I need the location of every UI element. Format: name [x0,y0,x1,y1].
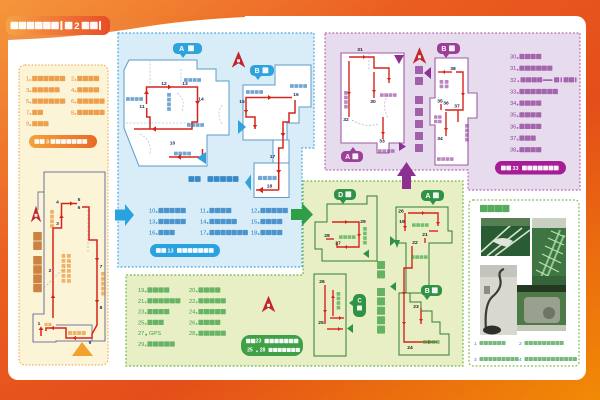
svg-text:3: 3 [46,139,49,145]
svg-text:9: 9 [26,122,29,128]
svg-text:31: 31 [510,66,516,72]
svg-text:16: 16 [149,230,155,236]
svg-text:2: 2 [519,341,522,347]
svg-text:B: B [255,68,260,75]
svg-text:36: 36 [510,124,516,130]
svg-text:5: 5 [78,197,81,203]
svg-text:1: 1 [474,341,477,347]
svg-text:GPS: GPS [149,331,161,337]
svg-text:22: 22 [412,240,418,246]
svg-text:25: 25 [247,348,253,354]
svg-text:26: 26 [398,209,404,215]
svg-text:15: 15 [251,219,257,225]
svg-text:37: 37 [510,136,516,142]
svg-text:34: 34 [437,136,443,142]
svg-text:13: 13 [149,219,155,225]
svg-text:23: 23 [256,339,262,345]
svg-text:23: 23 [138,310,144,316]
svg-text:21: 21 [138,299,144,305]
svg-text:24: 24 [407,345,413,351]
svg-text:28: 28 [324,233,330,239]
svg-text:6: 6 [78,205,81,211]
svg-text:18: 18 [267,184,273,190]
svg-text:33: 33 [379,139,385,145]
svg-text:30: 30 [370,99,376,105]
svg-text:7: 7 [100,264,103,270]
svg-text:16: 16 [293,92,299,98]
svg-text:18: 18 [251,230,257,236]
svg-text:25: 25 [318,320,324,326]
svg-text:30: 30 [510,54,516,60]
svg-text:23: 23 [413,304,419,310]
svg-text:28: 28 [189,331,195,337]
svg-text:1: 1 [26,76,29,82]
svg-text:15: 15 [239,99,245,105]
svg-text:29: 29 [360,219,366,225]
svg-text:29: 29 [138,342,144,348]
svg-text:3: 3 [474,357,477,363]
svg-text:17: 17 [270,154,276,160]
svg-text:33: 33 [512,166,518,172]
svg-text:35: 35 [437,99,443,105]
svg-text:8: 8 [100,305,103,311]
svg-text:27: 27 [138,331,144,337]
svg-text:22: 22 [189,299,195,305]
svg-text:20: 20 [189,288,195,294]
svg-text:1: 1 [38,321,41,327]
svg-text:19: 19 [138,288,144,294]
svg-text:2: 2 [49,268,52,274]
svg-text:28: 28 [260,348,266,354]
svg-text:33: 33 [510,89,516,95]
svg-text:11: 11 [139,104,144,110]
svg-text:12: 12 [251,208,257,214]
svg-text:13: 13 [182,81,188,87]
svg-text:34: 34 [510,101,516,107]
svg-text:25: 25 [138,320,144,326]
svg-text:36: 36 [443,101,449,107]
svg-text:4: 4 [56,200,59,206]
svg-text:24: 24 [189,310,195,316]
svg-text:26: 26 [319,279,325,285]
svg-text:6: 6 [71,99,74,105]
svg-text:26: 26 [189,320,195,326]
svg-text:10: 10 [149,208,155,214]
svg-text:38: 38 [510,148,516,154]
svg-text:12: 12 [161,81,167,87]
svg-text:A: A [425,193,430,200]
svg-text:3: 3 [56,221,59,227]
svg-text:27: 27 [335,241,341,247]
svg-text:37: 37 [454,104,460,110]
svg-text:A: A [345,154,350,161]
svg-text:10: 10 [170,141,176,147]
svg-text:3: 3 [26,88,29,94]
svg-text:C: C [357,299,362,305]
svg-text:B: B [441,46,446,53]
svg-text:2: 2 [74,21,79,32]
svg-text:19: 19 [399,219,405,225]
svg-text:14: 14 [200,219,206,225]
svg-text:B: B [425,288,430,295]
svg-text:4: 4 [71,88,74,94]
svg-text:17: 17 [200,230,206,236]
svg-text:32: 32 [510,78,516,84]
svg-text:7: 7 [26,110,29,116]
svg-text:14: 14 [198,97,204,103]
svg-text:32: 32 [343,117,349,123]
svg-text:8: 8 [71,110,74,116]
svg-text:21: 21 [422,232,428,238]
svg-text:31: 31 [357,47,363,53]
svg-text:2: 2 [71,76,74,82]
svg-text:11: 11 [200,208,206,214]
svg-text:A: A [179,46,184,53]
svg-text:38: 38 [450,66,456,72]
svg-text:9: 9 [89,340,92,346]
svg-text:D: D [338,192,343,199]
svg-text:5: 5 [26,99,29,105]
svg-text:4: 4 [519,357,522,363]
svg-text:35: 35 [510,113,516,119]
svg-text:13: 13 [167,248,173,254]
